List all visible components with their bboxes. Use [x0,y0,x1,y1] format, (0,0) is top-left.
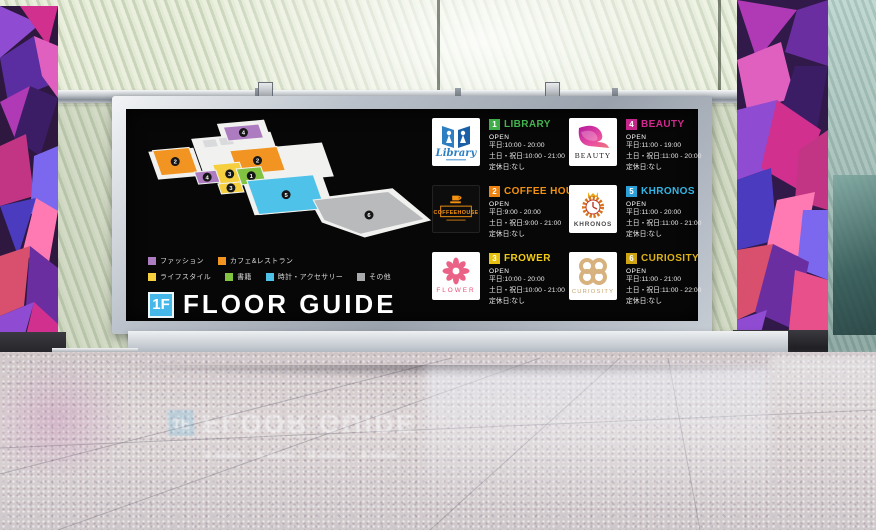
legend-swatch [225,273,233,281]
floor-guide-title-row: 1F FLOOR GUIDE [148,289,397,320]
store-name: FROWER [504,253,551,264]
screen-floor-reflection [425,366,770,511]
weekend-hours: 土日・祝日:11:00 - 20:00 [626,152,695,163]
svg-text:CURIOSITY: CURIOSITY [572,289,614,295]
closed-days: 定休日:なし [489,163,565,174]
svg-text:KHRONOS: KHRONOS [574,221,612,228]
legend-label: ファッション [160,256,204,266]
page-title: FLOOR GUIDE [183,289,397,320]
legend-item-lifestyle: ライフスタイル [148,272,211,282]
weekend-hours: 土日・祝日:11:00 - 22:00 [626,286,695,297]
legend-swatch [218,257,226,265]
flower-logo: FLOWER [432,252,480,300]
legend-label: ライフスタイル [160,272,211,282]
weekend-hours: 土日・祝日:10:00 - 21:00 [489,286,565,297]
open-label: OPEN [489,134,565,141]
store-entry-khronos: KHRONOS 5 KHRONOS OPEN 平日:11:00 - 20:00 … [569,185,695,252]
khronos-watch-icon: KHRONOS [569,185,617,233]
store-name: LIBRARY [504,119,551,130]
store-name: BEAUTY [641,119,685,130]
weekend-hours: 土日・祝日:9:00 - 21:00 [489,219,569,230]
svg-text:BEAUTY: BEAUTY [575,151,611,160]
store-name: KHRONOS [641,186,695,197]
legend-swatch [148,273,156,281]
legend-swatch [357,273,365,281]
weekend-hours: 土日・祝日:11:00 - 21:00 [626,219,695,230]
store-directory: Library 1 LIBRARY OPEN 平日:10:00 - 20:00 … [432,118,695,319]
legend-floor-reflection [205,452,397,458]
legend-item-books: 書籍 [225,272,252,282]
weekend-hours: 土日・祝日:10:00 - 21:00 [489,152,565,163]
weekday-hours: 平日:10:00 - 20:00 [489,141,565,152]
legend-item-other: その他 [357,272,391,282]
legend-swatch [266,273,274,281]
closed-days: 定休日:なし [626,163,695,174]
glass-mullion [718,0,721,96]
weekday-hours: 平日:9:00 - 20:00 [489,208,569,219]
signboard-screen: 422341356 ファッション カフェ&レストラン ラ [126,109,698,321]
abstract-art-pillar-right [737,0,828,348]
store-number-badge: 1 [489,119,500,130]
weekday-hours: 平日:11:00 - 20:00 [626,208,695,219]
closed-days: 定休日:なし [626,297,695,308]
open-label: OPEN [626,268,695,275]
svg-text:FLOWER: FLOWER [436,287,475,294]
closed-days: 定休日:なし [489,230,569,241]
legend-label: カフェ&レストラン [230,256,293,266]
store-entry-curiosity: CURIOSITY 6 CURIOSITY OPEN 平日:11:00 - 21… [569,252,695,319]
floor-guide-signboard: 422341356 ファッション カフェ&レストラン ラ [112,96,712,334]
legend-swatch [148,257,156,265]
store-entry-frower: FLOWER 3 FROWER OPEN 平日:10:00 - 20:00 土日… [432,252,569,319]
pillar-floor-reflection [0,360,130,480]
beauty-hair-icon: BEAUTY [569,118,617,166]
airport-concourse-scene: 422341356 ファッション カフェ&レストラン ラ [0,0,876,530]
khronos-logo: KHRONOS [569,185,617,233]
floor-number-chip: 1F [148,292,174,318]
store-number-badge: 3 [489,253,500,264]
legend-item-fashion: ファッション [148,256,204,266]
open-label: OPEN [489,268,565,275]
store-number-badge: 5 [626,186,637,197]
store-number-badge: 2 [489,186,500,197]
open-label: OPEN [626,134,695,141]
legend-label: 書籍 [237,272,252,282]
curiosity-logo: CURIOSITY [569,252,617,300]
weekday-hours: 平日:11:00 - 21:00 [626,275,695,286]
abstract-art-right [737,0,828,348]
legend-item-accessories: 時計・アクセサリー [266,272,343,282]
store-name: CURIOSITY [641,253,699,264]
svg-text:COFFEEHOUSE: COFFEEHOUSE [433,210,478,216]
closed-days: 定休日:なし [626,230,695,241]
store-entry-beauty: BEAUTY 4 BEAUTY OPEN 平日:11:00 - 19:00 土日… [569,118,695,185]
escalator-silhouette [833,175,876,335]
open-label: OPEN [489,201,569,208]
store-number-badge: 4 [626,119,637,130]
legend-label: その他 [369,272,391,282]
glass-floor-reflection [770,356,876,426]
store-entry-library: Library 1 LIBRARY OPEN 平日:10:00 - 20:00 … [432,118,569,185]
weekday-hours: 平日:10:00 - 20:00 [489,275,565,286]
svg-text:Library: Library [435,148,478,159]
coffee-house-logo: COFFEEHOUSE [432,185,480,233]
abstract-art-pillar-left [0,6,58,352]
abstract-art-left [0,6,58,352]
library-logo: Library [432,118,480,166]
store-number-badge: 6 [626,253,637,264]
flower-petals-icon: FLOWER [432,252,480,300]
reflected-floor-chip: 1F [167,411,194,437]
reflected-title: FLOOR GUIDE [202,408,417,439]
open-label: OPEN [626,201,695,208]
floor-map: 422341356 [144,115,444,255]
legend-label: 時計・アクセサリー [278,272,343,282]
coffee-cup-icon: COFFEEHOUSE [433,186,479,232]
weekday-hours: 平日:11:00 - 19:00 [626,141,695,152]
closed-days: 定休日:なし [489,297,565,308]
beauty-logo: BEAUTY [569,118,617,166]
map-legend: ファッション カフェ&レストラン ライフスタイル 書籍 [148,256,448,288]
store-entry-coffee-house: COFFEEHOUSE 2 COFFEE HOUSE OPEN 平日:9:00 … [432,185,569,252]
glass-mullion [437,0,440,96]
curiosity-rings-icon: CURIOSITY [569,252,617,300]
legend-item-cafe: カフェ&レストラン [218,256,293,266]
library-book-icon: Library [432,118,480,166]
title-floor-reflection: 1F FLOOR GUIDE [167,408,417,439]
